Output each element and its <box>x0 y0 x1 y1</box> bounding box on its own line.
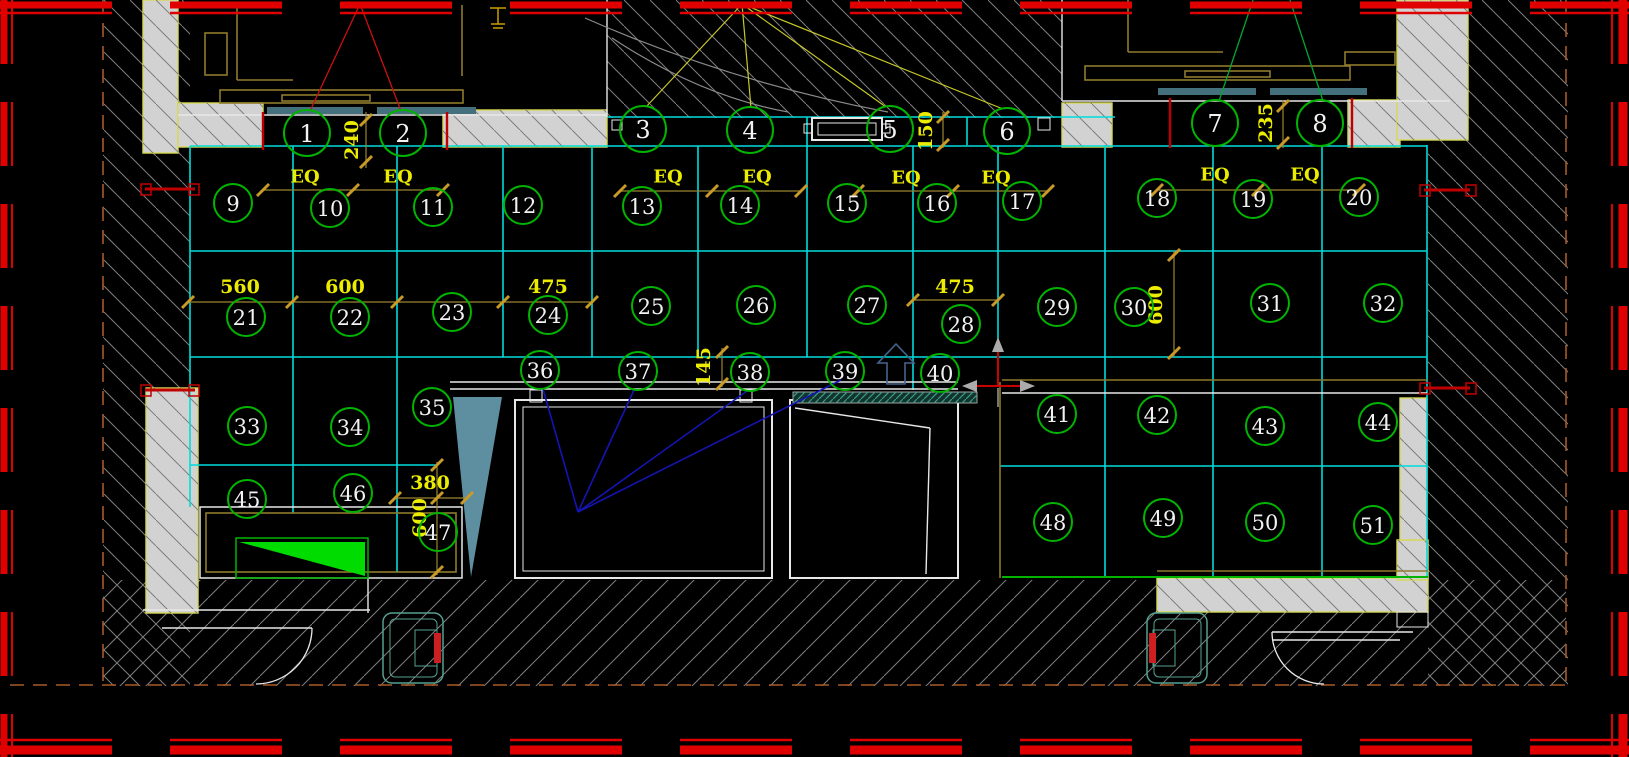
callout-number-31: 31 <box>1257 292 1284 316</box>
callout-number-29: 29 <box>1044 296 1071 320</box>
callout-number-12: 12 <box>510 194 537 218</box>
dim-text-560[interactable]: 560 <box>220 276 260 298</box>
callout-number-35: 35 <box>419 396 446 420</box>
callout-number-7: 7 <box>1207 110 1222 138</box>
callout-number-47: 47 <box>425 521 452 545</box>
wall-hatch <box>1062 103 1112 147</box>
wall-hatch <box>143 0 178 153</box>
callout-number-13: 13 <box>629 195 656 219</box>
callout-number-2: 2 <box>395 120 410 148</box>
eq-label[interactable]: EQ <box>981 168 1010 189</box>
callout-number-21: 21 <box>233 306 260 330</box>
callout-number-23: 23 <box>439 301 466 325</box>
callout-number-9: 9 <box>226 192 239 216</box>
callout-number-27: 27 <box>854 294 881 318</box>
dim-text-150[interactable]: 150 <box>915 111 937 151</box>
callout-number-1: 1 <box>299 120 314 148</box>
callout-number-17: 17 <box>1009 190 1036 214</box>
callout-number-22: 22 <box>337 306 364 330</box>
hatched-strip-pattern <box>793 392 977 403</box>
callout-number-10: 10 <box>317 197 344 221</box>
callout-number-26: 26 <box>743 294 770 318</box>
eq-label[interactable]: EQ <box>653 167 682 188</box>
eq-label[interactable]: EQ <box>290 167 319 188</box>
callout-number-43: 43 <box>1252 415 1279 439</box>
eq-label[interactable]: EQ <box>383 167 412 188</box>
callout-number-49: 49 <box>1150 507 1177 531</box>
callout-number-5: 5 <box>882 116 897 144</box>
callout-number-14: 14 <box>727 194 754 218</box>
dim-text-380[interactable]: 380 <box>410 472 450 494</box>
callout-number-8: 8 <box>1312 110 1327 138</box>
callout-number-19: 19 <box>1240 188 1267 212</box>
callout-number-33: 33 <box>234 415 261 439</box>
dim-text-240[interactable]: 240 <box>341 120 363 160</box>
callout-number-51: 51 <box>1360 514 1387 538</box>
dim-text-145[interactable]: 145 <box>693 347 715 387</box>
callout-number-50: 50 <box>1252 511 1279 535</box>
door-red-marker <box>434 633 441 663</box>
eq-label[interactable]: EQ <box>1200 165 1229 186</box>
headboard-bar <box>1158 88 1256 95</box>
callout-number-32: 32 <box>1370 292 1397 316</box>
wall-hatch <box>1397 540 1428 580</box>
callout-number-41: 41 <box>1044 403 1071 427</box>
callout-number-45: 45 <box>234 488 261 512</box>
callout-number-24: 24 <box>535 304 562 328</box>
dim-text-235[interactable]: 235 <box>1255 103 1277 143</box>
wall-hatch <box>178 103 263 147</box>
wall-hatch <box>1400 398 1427 540</box>
callout-number-44: 44 <box>1365 411 1392 435</box>
callout-number-40: 40 <box>927 362 954 386</box>
callout-number-20: 20 <box>1346 186 1373 210</box>
callout-number-15: 15 <box>834 192 861 216</box>
wall-hatch <box>1348 100 1400 147</box>
callout-number-18: 18 <box>1144 187 1171 211</box>
cad-viewport[interactable]: 240150235560600475475600145380600EQEQEQE… <box>0 0 1629 757</box>
wall-hatch <box>1157 578 1428 612</box>
callout-number-38: 38 <box>737 361 764 385</box>
callout-number-48: 48 <box>1040 511 1067 535</box>
callout-number-46: 46 <box>340 482 367 506</box>
callout-number-36: 36 <box>527 359 554 383</box>
door-red-marker <box>1149 633 1156 663</box>
callout-number-37: 37 <box>625 360 652 384</box>
dim-text-475[interactable]: 475 <box>935 276 975 298</box>
eq-label[interactable]: EQ <box>742 167 771 188</box>
callout-number-42: 42 <box>1144 404 1171 428</box>
callout-number-6: 6 <box>999 118 1014 146</box>
callout-number-30: 30 <box>1121 296 1148 320</box>
wall-hatch <box>1397 0 1468 140</box>
eq-label[interactable]: EQ <box>891 168 920 189</box>
ceiling-plan-drawing: 240150235560600475475600145380600EQEQEQE… <box>0 0 1629 757</box>
callout-number-16: 16 <box>924 192 951 216</box>
callout-number-39: 39 <box>832 360 859 384</box>
callout-number-3: 3 <box>635 116 650 144</box>
callout-number-25: 25 <box>638 295 665 319</box>
callout-number-34: 34 <box>337 416 364 440</box>
callout-number-4: 4 <box>742 117 757 145</box>
callout-number-28: 28 <box>948 313 975 337</box>
dim-text-475[interactable]: 475 <box>528 276 568 298</box>
callout-number-11: 11 <box>420 196 447 220</box>
dim-text-600[interactable]: 600 <box>325 276 365 298</box>
eq-label[interactable]: EQ <box>1290 165 1319 186</box>
